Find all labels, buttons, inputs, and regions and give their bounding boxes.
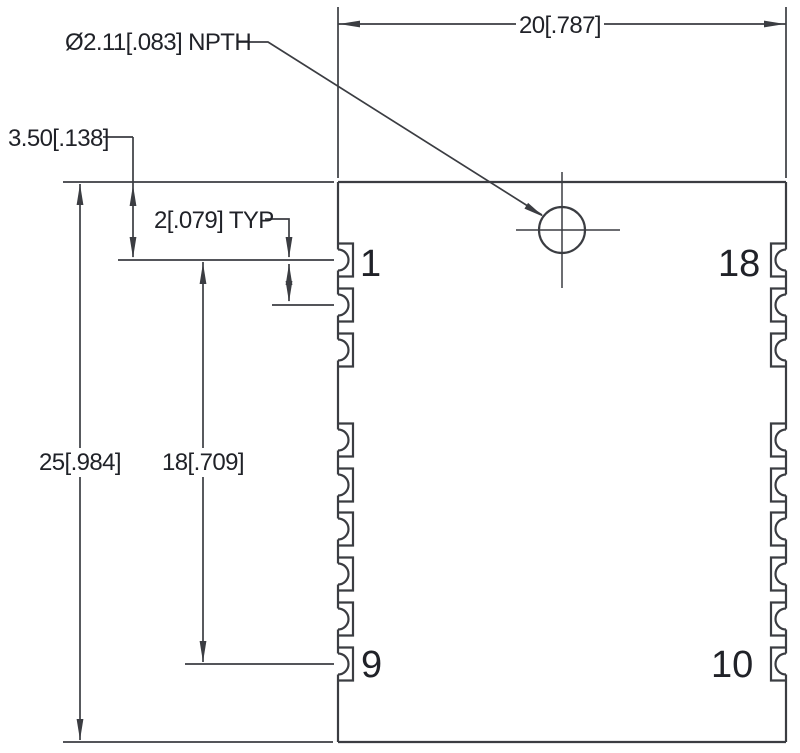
dimension-labels: 20[.787] Ø2.11[.083] NPTH 3.50[.138] 2[.… — [8, 12, 601, 476]
pitch-dimension-label: 2[.079] TYP — [154, 207, 274, 234]
top-offset-dimension-label: 3.50[.138] — [8, 125, 109, 152]
npth-hole-group — [516, 172, 620, 288]
hole-callout-label: Ø2.11[.083] NPTH — [65, 29, 251, 56]
module-dimension-drawing: 20[.787] Ø2.11[.083] NPTH 3.50[.138] 2[.… — [0, 0, 800, 753]
pin-label-top-left: 1 — [360, 243, 381, 285]
arrowhead-icon — [77, 719, 84, 740]
top-offset-dim-line — [103, 137, 133, 257]
arrowhead-icon — [130, 185, 137, 206]
arrowhead-icon — [339, 21, 360, 28]
arrowhead-icon — [286, 237, 293, 258]
drawing-canvas: 20[.787] Ø2.11[.083] NPTH 3.50[.138] 2[.… — [0, 0, 800, 753]
pin-labels: 1 18 9 10 — [360, 243, 760, 686]
width-dimension-label: 20[.787] — [519, 12, 601, 39]
module-left-castellated-pads — [338, 244, 353, 681]
arrowhead-icon — [764, 21, 785, 28]
hole-callout-leader — [237, 42, 542, 215]
pad-span-dimension-label: 18[.709] — [162, 449, 244, 476]
extension-lines — [63, 7, 786, 742]
pin-label-bottom-left: 9 — [361, 644, 382, 686]
arrowhead-icon — [286, 281, 293, 302]
arrowhead-icon — [524, 203, 544, 217]
npth-hole-crosshair — [516, 172, 620, 288]
module-right-castellated-pads — [771, 244, 786, 681]
arrowhead-icon — [200, 641, 207, 662]
pin-label-bottom-right: 10 — [711, 644, 753, 686]
arrowhead-icon — [77, 184, 84, 205]
pin-label-top-right: 18 — [718, 243, 760, 285]
dimension-arrowheads — [77, 21, 785, 740]
dimension-lines — [77, 21, 786, 740]
arrowhead-icon — [130, 237, 137, 258]
arrowhead-icon — [200, 263, 207, 284]
height-dimension-label: 25[.984] — [39, 449, 121, 476]
